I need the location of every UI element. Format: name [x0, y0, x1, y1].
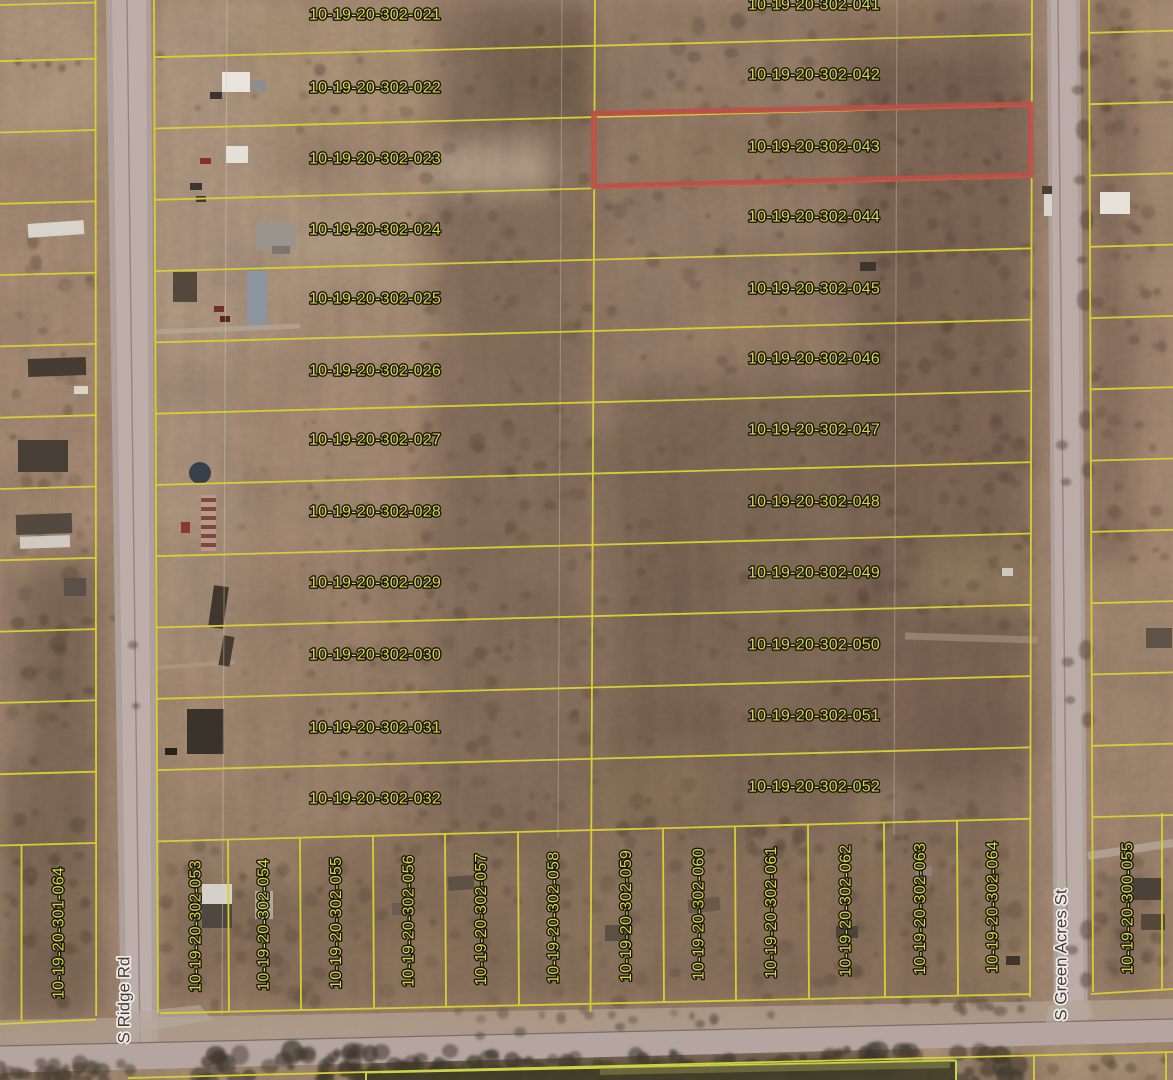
svg-text:10-19-20-302-063: 10-19-20-302-063: [912, 843, 929, 975]
svg-text:10-19-20-302-032: 10-19-20-302-032: [309, 791, 441, 808]
svg-text:10-19-20-302-064: 10-19-20-302-064: [985, 841, 1002, 973]
svg-text:S Green Acres St: S Green Acres St: [1052, 889, 1071, 1021]
svg-text:10-19-20-302-050: 10-19-20-302-050: [748, 637, 880, 654]
svg-text:10-19-20-300-055: 10-19-20-300-055: [1120, 842, 1137, 974]
svg-text:10-19-20-301-064: 10-19-20-301-064: [51, 867, 68, 999]
svg-text:10-19-20-302-060: 10-19-20-302-060: [691, 848, 708, 980]
svg-text:10-19-20-302-027: 10-19-20-302-027: [309, 432, 441, 449]
svg-text:10-19-20-302-049: 10-19-20-302-049: [748, 565, 880, 582]
svg-text:10-19-20-302-057: 10-19-20-302-057: [473, 853, 490, 985]
svg-text:10-19-20-302-054: 10-19-20-302-054: [256, 859, 273, 991]
svg-text:10-19-20-302-059: 10-19-20-302-059: [618, 850, 635, 982]
svg-text:10-19-20-302-031: 10-19-20-302-031: [309, 720, 441, 737]
svg-text:10-19-20-302-029: 10-19-20-302-029: [309, 575, 441, 592]
svg-text:10-19-20-302-044: 10-19-20-302-044: [748, 209, 880, 226]
svg-text:10-19-20-302-024: 10-19-20-302-024: [309, 222, 441, 239]
svg-text:10-19-20-302-021: 10-19-20-302-021: [309, 7, 441, 24]
svg-text:10-19-20-302-055: 10-19-20-302-055: [328, 857, 345, 989]
svg-text:10-19-20-302-045: 10-19-20-302-045: [748, 281, 880, 298]
svg-text:10-19-20-302-023: 10-19-20-302-023: [309, 151, 441, 168]
svg-text:10-19-20-302-025: 10-19-20-302-025: [309, 291, 441, 308]
svg-text:10-19-20-302-022: 10-19-20-302-022: [309, 80, 441, 97]
svg-text:10-19-20-302-042: 10-19-20-302-042: [748, 67, 880, 84]
svg-text:S Ridge Rd: S Ridge Rd: [115, 957, 134, 1044]
svg-text:10-19-20-302-062: 10-19-20-302-062: [838, 845, 855, 977]
svg-text:10-19-20-302-058: 10-19-20-302-058: [546, 852, 563, 984]
svg-text:10-19-20-302-061: 10-19-20-302-061: [763, 846, 780, 978]
svg-text:10-19-20-302-056: 10-19-20-302-056: [401, 855, 418, 987]
svg-text:10-19-20-302-047: 10-19-20-302-047: [748, 422, 880, 439]
svg-text:10-19-20-302-026: 10-19-20-302-026: [309, 363, 441, 380]
svg-text:10-19-20-302-048: 10-19-20-302-048: [748, 494, 880, 511]
svg-text:10-19-20-302-030: 10-19-20-302-030: [309, 647, 441, 664]
svg-text:10-19-20-302-046: 10-19-20-302-046: [748, 351, 880, 368]
svg-text:10-19-20-302-043: 10-19-20-302-043: [748, 139, 880, 156]
svg-text:10-19-20-302-051: 10-19-20-302-051: [748, 708, 880, 725]
svg-text:10-19-20-302-041: 10-19-20-302-041: [748, 0, 880, 14]
svg-text:10-19-20-302-053: 10-19-20-302-053: [188, 860, 205, 992]
svg-text:10-19-20-302-052: 10-19-20-302-052: [748, 779, 880, 796]
svg-text:10-19-20-302-028: 10-19-20-302-028: [309, 504, 441, 521]
